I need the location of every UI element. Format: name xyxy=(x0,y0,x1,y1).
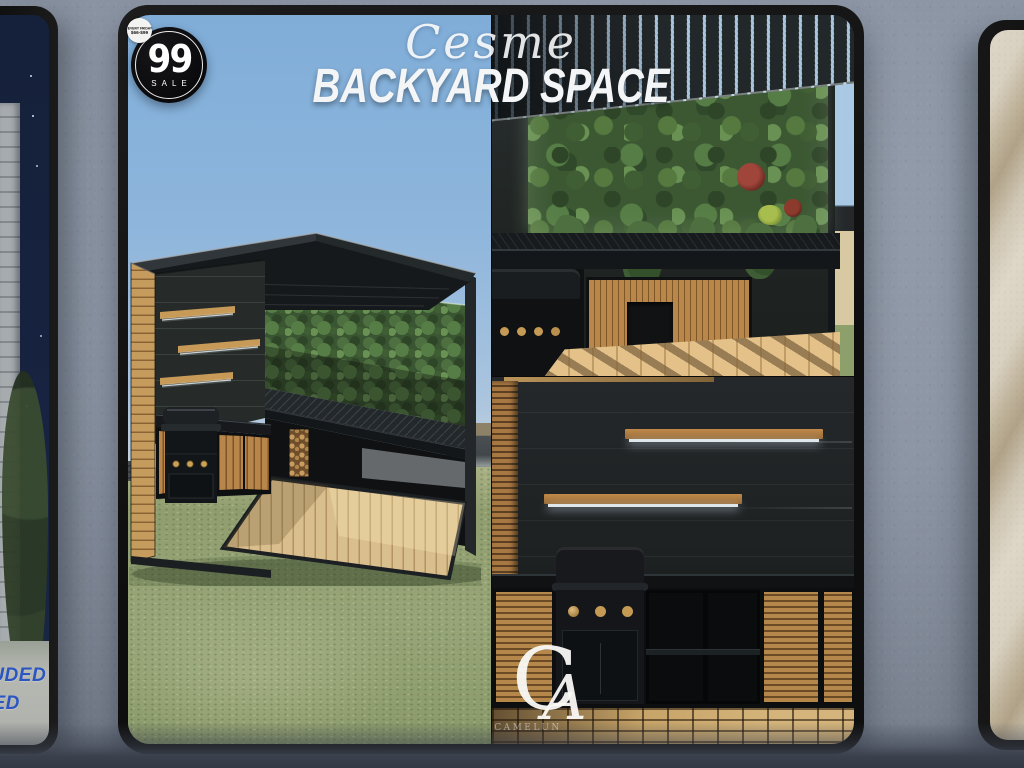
slat-band xyxy=(492,233,840,249)
counter-top xyxy=(492,574,854,588)
left-ad-poster[interactable]: CLUDED UDED xyxy=(0,6,58,754)
lit-edge xyxy=(504,377,714,382)
counter-top xyxy=(492,249,840,269)
wood-slat-cabinet xyxy=(822,590,854,704)
grill-knobs xyxy=(568,606,579,617)
brand-watermark: CAMELUN xyxy=(460,723,596,733)
photo-exterior xyxy=(128,15,492,744)
wood-slat-cabinet xyxy=(762,590,820,704)
partial-text-line-2: UDED xyxy=(0,693,20,715)
sale-badge-label: SALE xyxy=(146,79,191,88)
viewport: CLUDED UDED xyxy=(0,0,1024,768)
red-plant-accent xyxy=(737,163,765,191)
poster-collage: Cesme BACKYARD SPACE C A CAMELUN xyxy=(128,15,854,744)
collection-title-main: BACKYARD SPACE xyxy=(201,59,782,114)
ribbon-line-2: $66-$99 xyxy=(131,31,148,35)
right-ad-image xyxy=(990,30,1024,740)
night-stars xyxy=(30,75,32,77)
firewood xyxy=(289,429,309,477)
fabric-texture xyxy=(990,30,1024,740)
grill-hood xyxy=(556,547,644,589)
left-ad-image: CLUDED UDED xyxy=(0,15,49,745)
side-opening-view xyxy=(834,55,854,377)
right-ad-poster[interactable] xyxy=(978,20,1024,750)
open-cubbies xyxy=(646,590,760,704)
opening-jamb xyxy=(828,51,835,377)
lime-plant-accent xyxy=(758,205,782,225)
grill xyxy=(161,407,221,503)
light-reflection xyxy=(722,507,852,509)
red-plant-accent xyxy=(784,199,802,217)
collage-seam xyxy=(491,15,492,744)
cesme-backyard-space-poster[interactable]: Cesme BACKYARD SPACE C A CAMELUN 99 SALE… xyxy=(118,5,864,754)
wood-slat-column xyxy=(492,381,518,583)
collage-seam xyxy=(492,376,854,377)
sale-badge-ribbon: EVERY FRIDAY $66-$99 xyxy=(127,18,152,43)
partial-text-line-1: CLUDED xyxy=(0,665,46,687)
left-wood-column xyxy=(131,263,155,562)
lit-wood-shelf xyxy=(625,429,823,439)
grill-knobs xyxy=(500,327,509,336)
pergola-structure xyxy=(129,226,481,586)
monogram-letter-a: A xyxy=(542,667,587,729)
lit-wood-shelf xyxy=(544,494,742,504)
